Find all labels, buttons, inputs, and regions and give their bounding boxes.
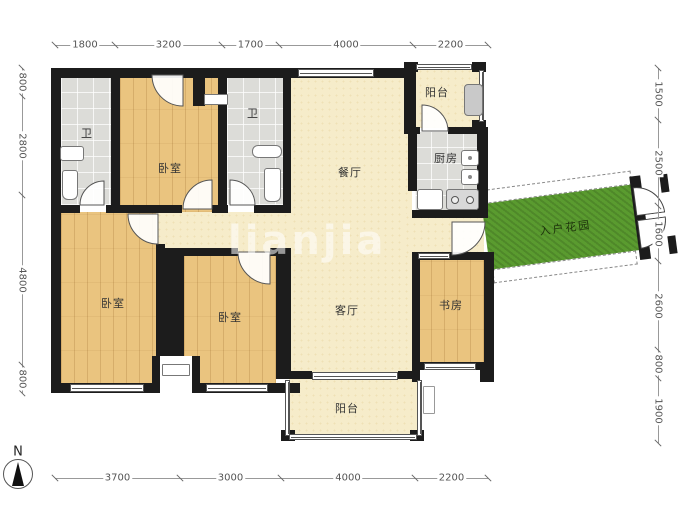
door-arc-icon — [128, 214, 158, 244]
room-label-kitchen: 厨房 — [434, 150, 458, 166]
room-label-study: 书房 — [439, 297, 463, 313]
room-label-dining-room: 餐厅 — [338, 164, 362, 180]
door-arc-icon — [452, 222, 485, 255]
door-arc-icon — [230, 180, 255, 205]
room-label-bedroom-middle: 卧室 — [218, 309, 242, 325]
toilet-icon — [62, 170, 78, 200]
washing-machine-icon — [464, 84, 483, 116]
room-label-bath-1: 卫 — [81, 125, 93, 141]
door-arc-icon — [183, 180, 212, 209]
fridge-icon — [417, 189, 443, 210]
room-label-balcony-bottom: 阳台 — [335, 400, 359, 416]
toilet-icon — [264, 168, 281, 202]
door-arc-icon — [238, 252, 270, 284]
door-arc-icon — [152, 75, 183, 106]
stove-icon — [446, 189, 479, 210]
room-label-bedroom-left: 卧室 — [101, 295, 125, 311]
kitchen-sink-icon — [461, 169, 479, 185]
room-label-living-room: 客厅 — [335, 302, 359, 318]
ac-unit-icon — [423, 386, 435, 414]
compass-north-label: N — [13, 445, 23, 460]
room-label-balcony-top: 阳台 — [425, 84, 449, 100]
kitchen-sink-icon — [461, 150, 479, 166]
door-arcs — [0, 0, 690, 517]
sink-icon — [60, 146, 84, 161]
room-label-bedroom-top: 卧室 — [158, 160, 182, 176]
room-label-bath-2: 卫 — [247, 105, 259, 121]
bathtub-icon — [252, 145, 282, 158]
duct-icon — [204, 94, 228, 105]
ac-unit-icon — [162, 364, 190, 376]
door-arc-icon — [80, 181, 104, 205]
compass-needle — [12, 462, 24, 486]
floor-plan-canvas: 入户花园 — [0, 0, 690, 517]
door-arc-icon — [422, 105, 448, 131]
